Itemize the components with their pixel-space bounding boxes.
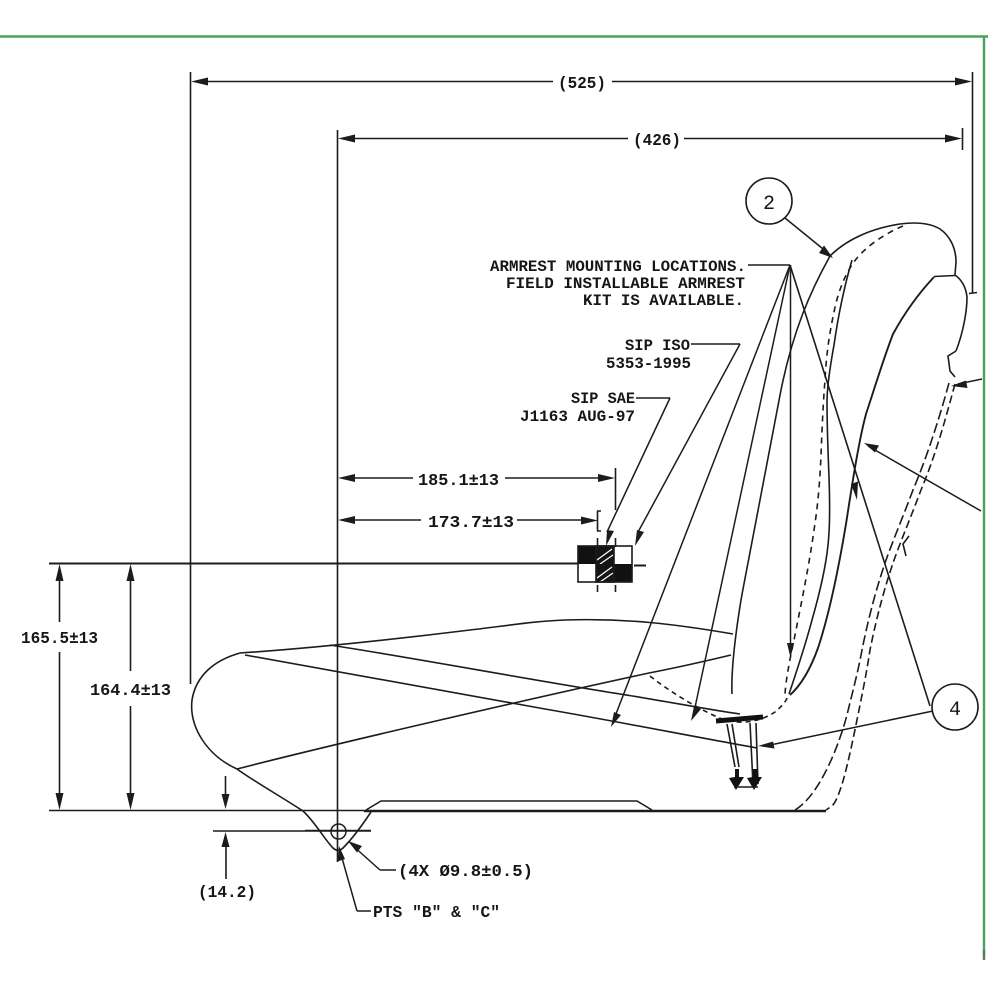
svg-text:2: 2 bbox=[763, 193, 775, 216]
svg-text:165.5±13: 165.5±13 bbox=[21, 630, 98, 649]
svg-text:SIP SAE: SIP SAE bbox=[571, 390, 635, 408]
svg-text:(426): (426) bbox=[633, 132, 681, 151]
svg-text:KIT IS AVAILABLE.: KIT IS AVAILABLE. bbox=[583, 292, 744, 310]
svg-text:4: 4 bbox=[949, 699, 961, 722]
svg-text:J1163 AUG-97: J1163 AUG-97 bbox=[520, 408, 635, 426]
svg-text:185.1±13: 185.1±13 bbox=[418, 472, 499, 491]
svg-text:(525): (525) bbox=[558, 75, 606, 94]
svg-text:(14.2): (14.2) bbox=[198, 884, 256, 903]
svg-text:ARMREST MOUNTING LOCATIONS.: ARMREST MOUNTING LOCATIONS. bbox=[490, 258, 746, 276]
svg-text:173.7±13: 173.7±13 bbox=[428, 514, 514, 533]
svg-text:164.4±13: 164.4±13 bbox=[90, 682, 171, 701]
svg-text:FIELD INSTALLABLE ARMREST: FIELD INSTALLABLE ARMREST bbox=[506, 275, 745, 293]
svg-text:(4X Ø9.8±0.5): (4X Ø9.8±0.5) bbox=[398, 863, 533, 882]
svg-text:PTS "B" & "C": PTS "B" & "C" bbox=[373, 904, 500, 923]
svg-text:5353-1995: 5353-1995 bbox=[606, 355, 691, 373]
svg-text:SIP ISO: SIP ISO bbox=[625, 337, 690, 355]
